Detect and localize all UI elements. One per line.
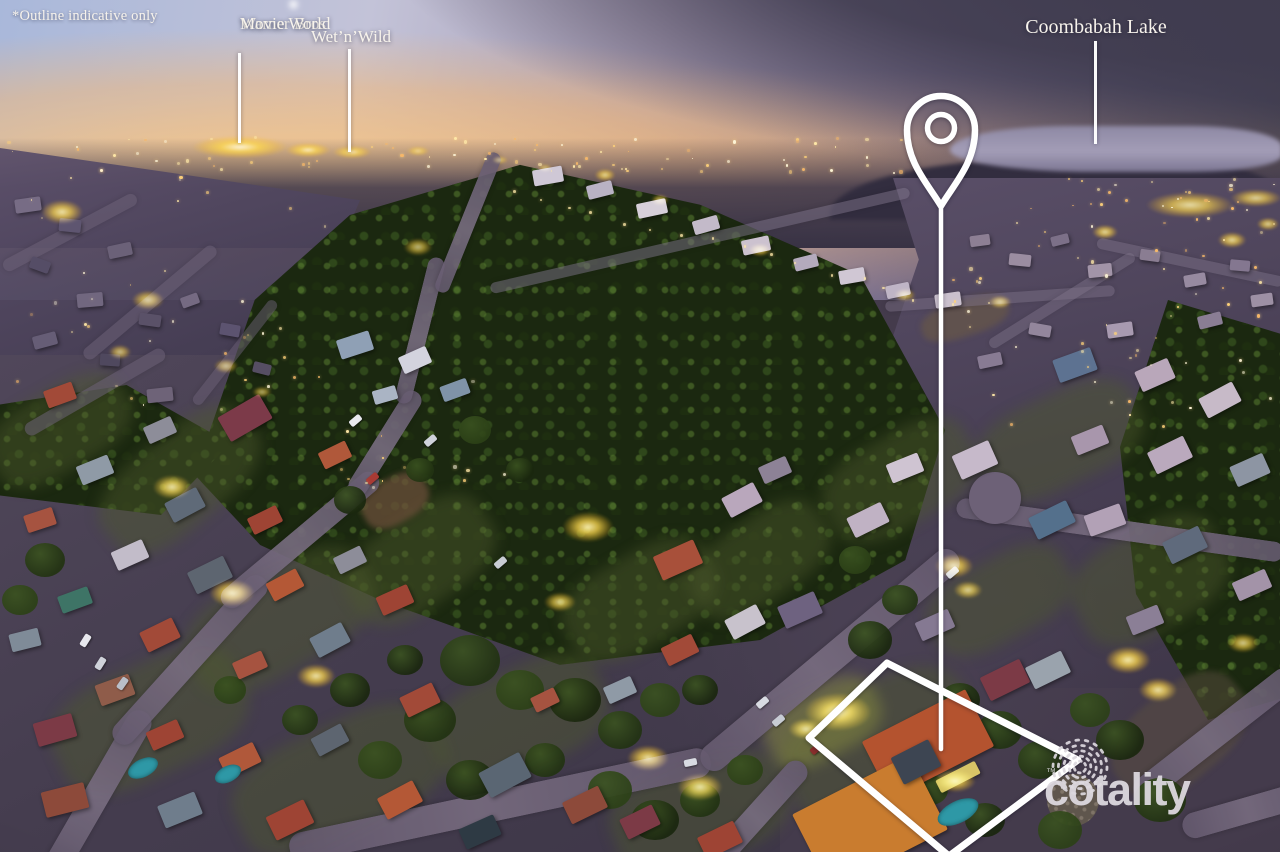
cotality-logo-text: cotality bbox=[1044, 767, 1190, 812]
city-light-dot bbox=[866, 164, 869, 167]
city-light-dot bbox=[262, 332, 264, 334]
city-light-dot bbox=[954, 300, 956, 302]
city-light-dot bbox=[628, 151, 630, 153]
house-roof bbox=[157, 791, 203, 828]
city-light-dot bbox=[1170, 315, 1172, 317]
city-light-dot bbox=[177, 200, 179, 202]
city-light-dot bbox=[612, 164, 614, 166]
city-light-dot bbox=[54, 301, 57, 304]
house-roof bbox=[8, 628, 41, 653]
city-light-dot bbox=[835, 146, 837, 148]
streetlight-glow bbox=[292, 661, 340, 691]
city-light-dot bbox=[289, 207, 292, 210]
city-light-dot bbox=[1222, 287, 1224, 289]
ridge-light-dot bbox=[540, 199, 543, 202]
streetlight-glow bbox=[746, 242, 774, 258]
city-light-dot bbox=[600, 151, 602, 153]
city-light-dot bbox=[503, 473, 506, 476]
city-light-dot bbox=[573, 165, 576, 168]
city-light-dot bbox=[1072, 205, 1074, 207]
city-light-dot bbox=[385, 143, 388, 146]
city-light-dot bbox=[706, 164, 709, 167]
scene-detail-layer bbox=[0, 0, 1280, 852]
house-roof bbox=[838, 267, 866, 285]
city-light-dot bbox=[1077, 257, 1079, 259]
city-light-dot bbox=[1254, 266, 1257, 269]
city-light-dot bbox=[1155, 337, 1157, 339]
city-light-dot bbox=[172, 320, 175, 323]
city-light-dot bbox=[1260, 231, 1263, 234]
city-light-dot bbox=[830, 169, 833, 172]
city-light-dot bbox=[30, 313, 33, 316]
city-light-dot bbox=[836, 137, 839, 140]
ridge-light-dot bbox=[589, 211, 592, 214]
house-roof bbox=[1050, 233, 1070, 247]
city-light-dot bbox=[727, 160, 730, 163]
city-light-dot bbox=[1038, 245, 1040, 247]
tree-cluster bbox=[1038, 811, 1082, 848]
city-light-dot bbox=[626, 170, 629, 173]
streetlight-glow bbox=[930, 551, 978, 581]
city-light-dot bbox=[302, 163, 305, 166]
streetlight-glow bbox=[490, 155, 510, 165]
outline-disclaimer: *Outline indicative only bbox=[12, 8, 158, 25]
house-roof bbox=[793, 253, 819, 271]
city-light-dot bbox=[1100, 203, 1103, 206]
house-roof bbox=[139, 617, 181, 653]
city-light-dot bbox=[1114, 332, 1117, 335]
city-light-dot bbox=[144, 139, 146, 141]
city-light-dot bbox=[279, 327, 282, 330]
city-light-dot bbox=[346, 430, 349, 433]
city-light-dot bbox=[16, 380, 19, 383]
city-light-dot bbox=[91, 298, 93, 300]
streetlight-glow bbox=[1134, 675, 1182, 705]
house-roof bbox=[57, 586, 93, 614]
city-light-dot bbox=[976, 280, 978, 282]
streetlight-glow bbox=[649, 193, 671, 207]
streetlight-glow bbox=[400, 236, 436, 258]
city-light-dot bbox=[113, 154, 116, 157]
city-light-dot bbox=[1242, 371, 1245, 374]
city-light-dot bbox=[536, 144, 538, 146]
house-roof bbox=[372, 385, 399, 405]
city-light-dot bbox=[900, 139, 902, 141]
house-roof bbox=[1008, 253, 1031, 267]
city-light-dot bbox=[804, 156, 806, 158]
city-light-dot bbox=[128, 139, 130, 141]
house-roof bbox=[336, 330, 375, 360]
ridge-light-dot bbox=[831, 274, 834, 277]
city-light-dot bbox=[1162, 205, 1164, 207]
streetlight-glow bbox=[1223, 631, 1263, 655]
ridge-light-dot bbox=[864, 277, 867, 280]
city-light-dot bbox=[661, 168, 663, 170]
city-light-dot bbox=[464, 140, 467, 143]
city-light-dot bbox=[515, 160, 518, 163]
city-light-dot bbox=[220, 408, 223, 411]
city-light-dot bbox=[585, 157, 588, 160]
city-light-dot bbox=[1185, 362, 1187, 364]
city-light-dot bbox=[70, 177, 73, 180]
city-light-dot bbox=[814, 142, 817, 145]
ridge-light-dot bbox=[770, 253, 773, 256]
city-light-dot bbox=[83, 272, 86, 275]
city-light-dot bbox=[7, 141, 10, 144]
parked-car bbox=[94, 656, 107, 671]
city-light-dot bbox=[308, 166, 310, 168]
city-light-dot bbox=[1081, 342, 1084, 345]
house-roof bbox=[23, 507, 57, 533]
city-light-dot bbox=[143, 404, 145, 406]
city-light-dot bbox=[625, 168, 627, 170]
city-light-dot bbox=[534, 149, 536, 151]
city-light-dot bbox=[427, 165, 430, 168]
city-light-dot bbox=[1090, 203, 1092, 205]
city-light-dot bbox=[77, 148, 79, 150]
city-light-dot bbox=[208, 157, 211, 160]
city-light-dot bbox=[283, 356, 286, 359]
city-light-dot bbox=[666, 158, 669, 161]
city-light-dot bbox=[1044, 231, 1046, 233]
city-light-dot bbox=[318, 376, 320, 378]
city-light-dot bbox=[1094, 381, 1096, 383]
city-light-dot bbox=[514, 138, 516, 140]
streetlight-glow bbox=[784, 716, 828, 742]
city-light-dot bbox=[136, 152, 139, 155]
streetlight-glow bbox=[211, 357, 241, 375]
streetlight-glow bbox=[592, 167, 618, 183]
city-light-dot bbox=[403, 466, 405, 468]
parked-car bbox=[348, 413, 362, 427]
streetlight-glow bbox=[622, 742, 674, 774]
city-light-dot bbox=[538, 163, 541, 166]
house-roof bbox=[252, 360, 272, 375]
city-light-dot bbox=[164, 270, 167, 273]
city-light-dot bbox=[551, 170, 553, 172]
city-light-dot bbox=[979, 277, 982, 280]
house-roof bbox=[1147, 435, 1193, 474]
cul-de-sac bbox=[969, 472, 1021, 524]
leader-line-coombabah bbox=[1094, 41, 1097, 144]
leader-line-movie-world bbox=[238, 53, 241, 143]
ridge-light-dot bbox=[649, 229, 652, 232]
city-light-dot bbox=[12, 151, 14, 153]
house-roof bbox=[1198, 381, 1242, 418]
streetlight-glow bbox=[1100, 643, 1156, 677]
house-roof bbox=[977, 351, 1003, 369]
city-light-dot bbox=[561, 144, 563, 146]
city-light-dot bbox=[241, 300, 244, 303]
city-light-dot bbox=[392, 147, 394, 149]
city-light-dot bbox=[250, 161, 253, 164]
streetlight-glow bbox=[204, 576, 260, 610]
house-roof bbox=[1028, 500, 1076, 540]
tree-cluster bbox=[2, 585, 38, 616]
city-light-dot bbox=[1163, 268, 1165, 270]
city-light-dot bbox=[1151, 181, 1153, 183]
tree-cluster bbox=[640, 683, 680, 717]
city-light-dot bbox=[1091, 260, 1094, 263]
city-light-dot bbox=[1188, 191, 1191, 194]
leader-line-wet-n-wild bbox=[348, 49, 351, 152]
city-light-dot bbox=[1135, 354, 1138, 357]
city-light-dot bbox=[308, 162, 311, 165]
city-light-dot bbox=[1246, 209, 1248, 211]
house-roof bbox=[1231, 569, 1272, 602]
city-light-dot bbox=[155, 160, 157, 162]
parked-car bbox=[79, 633, 92, 648]
tree-cluster bbox=[282, 705, 318, 736]
house-roof bbox=[1025, 650, 1071, 689]
streetlight-glow bbox=[148, 472, 196, 502]
city-light-dot bbox=[1257, 314, 1260, 317]
house-roof bbox=[1106, 321, 1134, 338]
city-light-dot bbox=[969, 326, 971, 328]
house-roof bbox=[180, 292, 201, 308]
city-light-dot bbox=[1081, 180, 1083, 182]
streetlight-glow bbox=[556, 508, 620, 546]
tree-cluster bbox=[839, 546, 871, 573]
ridge-light-dot bbox=[912, 299, 915, 302]
city-light-dot bbox=[1114, 184, 1116, 186]
city-light-dot bbox=[802, 168, 805, 171]
city-light-dot bbox=[400, 154, 403, 157]
city-light-dot bbox=[244, 379, 247, 382]
ridge-light-dot bbox=[568, 207, 571, 210]
city-light-dot bbox=[969, 267, 972, 270]
city-light-dot bbox=[71, 331, 73, 333]
city-light-dot bbox=[789, 170, 792, 173]
city-light-dot bbox=[578, 165, 581, 168]
city-light-dot bbox=[177, 162, 180, 165]
house-roof bbox=[138, 313, 161, 328]
city-light-dot bbox=[293, 376, 296, 379]
city-light-dot bbox=[1273, 184, 1275, 186]
city-light-dot bbox=[893, 172, 895, 174]
house-roof bbox=[1052, 347, 1098, 383]
streetlight-glow bbox=[1214, 230, 1250, 250]
city-light-dot bbox=[1087, 366, 1089, 368]
city-light-dot bbox=[733, 140, 736, 143]
city-light-dot bbox=[988, 302, 990, 304]
street-road bbox=[1179, 775, 1280, 841]
streetlight-glow bbox=[1089, 223, 1121, 241]
city-light-dot bbox=[186, 159, 189, 162]
streetlight-glow bbox=[986, 294, 1014, 310]
city-light-dot bbox=[992, 394, 994, 396]
ridge-light-dot bbox=[623, 223, 626, 226]
streetlight-glow bbox=[929, 767, 981, 795]
tree-cluster bbox=[682, 675, 718, 706]
house-roof bbox=[318, 440, 353, 469]
streetlight-glow bbox=[36, 197, 88, 227]
tree-cluster bbox=[506, 458, 534, 482]
city-light-dot bbox=[1155, 249, 1158, 252]
house-roof bbox=[1250, 293, 1273, 308]
city-light-dot bbox=[783, 159, 785, 161]
city-light-dot bbox=[1229, 184, 1232, 187]
city-light-dot bbox=[429, 156, 431, 158]
city-light-dot bbox=[866, 156, 869, 159]
city-light-dot bbox=[87, 325, 90, 328]
city-light-dot bbox=[1227, 303, 1230, 306]
streetlight-glow bbox=[672, 770, 728, 804]
house-roof bbox=[76, 292, 103, 308]
city-light-dot bbox=[1239, 359, 1242, 362]
house-roof bbox=[1230, 259, 1251, 272]
streetlight-glow bbox=[250, 385, 274, 399]
house-roof bbox=[660, 634, 699, 667]
city-light-dot bbox=[786, 164, 788, 166]
city-light-dot bbox=[1207, 217, 1210, 220]
streetlight-glow bbox=[328, 144, 376, 160]
house-roof bbox=[969, 233, 990, 247]
ridge-light-dot bbox=[712, 237, 715, 240]
tree-cluster bbox=[214, 676, 246, 703]
house-roof bbox=[1134, 358, 1176, 393]
streetlight-glow bbox=[540, 590, 580, 614]
city-light-dot bbox=[454, 137, 457, 140]
house-roof bbox=[980, 659, 1031, 702]
city-light-dot bbox=[494, 143, 496, 145]
city-light-dot bbox=[130, 284, 132, 286]
tree-cluster bbox=[882, 585, 918, 616]
streetlight-glow bbox=[950, 579, 986, 601]
city-light-dot bbox=[687, 149, 690, 152]
city-light-dot bbox=[1269, 397, 1272, 400]
city-light-dot bbox=[466, 469, 469, 472]
house-roof bbox=[107, 241, 133, 259]
house-roof bbox=[146, 387, 173, 404]
city-light-dot bbox=[1229, 188, 1232, 191]
house-roof bbox=[32, 331, 59, 350]
city-light-dot bbox=[1125, 199, 1128, 202]
house-roof bbox=[777, 591, 823, 629]
city-light-dot bbox=[324, 225, 327, 228]
aerial-dusk-photo: *Outline indicative only Warner Bros Mov… bbox=[0, 0, 1280, 852]
house-roof bbox=[758, 456, 793, 485]
city-light-dot bbox=[621, 168, 623, 170]
city-light-dot bbox=[164, 140, 167, 143]
city-light-dot bbox=[1233, 178, 1236, 181]
city-light-dot bbox=[796, 140, 799, 143]
house-roof bbox=[1229, 453, 1271, 488]
city-light-dot bbox=[1196, 218, 1199, 221]
city-light-dot bbox=[1195, 293, 1197, 295]
ridge-light-dot bbox=[680, 234, 683, 237]
city-light-dot bbox=[634, 138, 637, 141]
parked-car bbox=[423, 433, 437, 447]
city-light-dot bbox=[1091, 225, 1093, 227]
label-coombabah-lake: Coombabah Lake bbox=[1025, 16, 1167, 39]
city-light-dot bbox=[213, 165, 215, 167]
city-light-dot bbox=[1108, 191, 1111, 194]
city-light-dot bbox=[1202, 255, 1205, 258]
label-wet-n-wild: Wet’n’Wild bbox=[311, 27, 391, 47]
city-light-dot bbox=[1128, 400, 1131, 403]
city-light-dot bbox=[613, 145, 615, 147]
city-light-dot bbox=[899, 170, 902, 173]
city-light-dot bbox=[1097, 188, 1100, 191]
streetlight-glow bbox=[106, 343, 134, 361]
house-roof bbox=[219, 322, 241, 337]
streetlight-glow bbox=[128, 288, 168, 312]
city-light-dot bbox=[1223, 239, 1225, 241]
city-light-dot bbox=[316, 160, 318, 162]
city-light-dot bbox=[1016, 222, 1018, 224]
city-light-dot bbox=[700, 170, 703, 173]
city-light-dot bbox=[453, 154, 455, 156]
tree-cluster bbox=[459, 416, 491, 443]
city-light-dot bbox=[1185, 249, 1188, 252]
city-light-dot bbox=[1030, 208, 1032, 210]
house-roof bbox=[1197, 311, 1223, 329]
city-light-dot bbox=[1015, 346, 1017, 348]
city-light-dot bbox=[484, 158, 486, 160]
city-light-dot bbox=[1136, 349, 1139, 352]
city-light-dot bbox=[1129, 414, 1131, 416]
city-light-dot bbox=[1189, 407, 1192, 410]
ridge-light-dot bbox=[513, 190, 516, 193]
city-light-dot bbox=[372, 486, 375, 489]
streetlight-glow bbox=[404, 145, 432, 157]
city-light-dot bbox=[1129, 357, 1131, 359]
city-light-dot bbox=[1171, 401, 1174, 404]
parked-car bbox=[493, 555, 507, 569]
city-light-dot bbox=[381, 435, 383, 437]
tree-cluster bbox=[848, 621, 892, 658]
city-light-dot bbox=[1162, 425, 1165, 428]
city-light-dot bbox=[1068, 178, 1070, 180]
house-roof bbox=[439, 378, 471, 403]
city-light-dot bbox=[371, 146, 373, 148]
city-light-dot bbox=[952, 279, 955, 282]
tree-cluster bbox=[525, 743, 565, 777]
tree-cluster bbox=[25, 543, 65, 577]
streetlight-glow bbox=[1254, 216, 1280, 232]
city-light-dot bbox=[865, 138, 868, 141]
city-light-dot bbox=[1237, 201, 1239, 203]
tree-cluster bbox=[406, 458, 434, 482]
tree-cluster bbox=[440, 635, 500, 686]
city-light-dot bbox=[130, 397, 133, 400]
house-roof bbox=[586, 180, 615, 200]
city-light-dot bbox=[149, 340, 151, 342]
city-light-dot bbox=[382, 457, 384, 459]
tree-cluster bbox=[387, 645, 423, 676]
city-light-dot bbox=[471, 380, 474, 383]
tree-cluster bbox=[334, 486, 366, 513]
house-roof bbox=[603, 676, 638, 705]
city-light-dot bbox=[978, 281, 981, 284]
street-road bbox=[433, 150, 503, 295]
tree-cluster bbox=[727, 755, 763, 786]
city-light-dot bbox=[692, 158, 694, 160]
trademark-symbol: ™ bbox=[1046, 767, 1056, 778]
city-light-dot bbox=[463, 479, 466, 482]
city-light-dot bbox=[1259, 281, 1262, 284]
city-light-dot bbox=[1163, 222, 1166, 225]
house-roof bbox=[1028, 322, 1052, 338]
city-light-dot bbox=[179, 179, 181, 181]
house-roof bbox=[1087, 262, 1112, 277]
city-light-dot bbox=[206, 191, 209, 194]
city-light-dot bbox=[1208, 201, 1210, 203]
city-light-dot bbox=[267, 385, 270, 388]
house-roof bbox=[1183, 272, 1207, 288]
house-roof bbox=[247, 505, 284, 535]
